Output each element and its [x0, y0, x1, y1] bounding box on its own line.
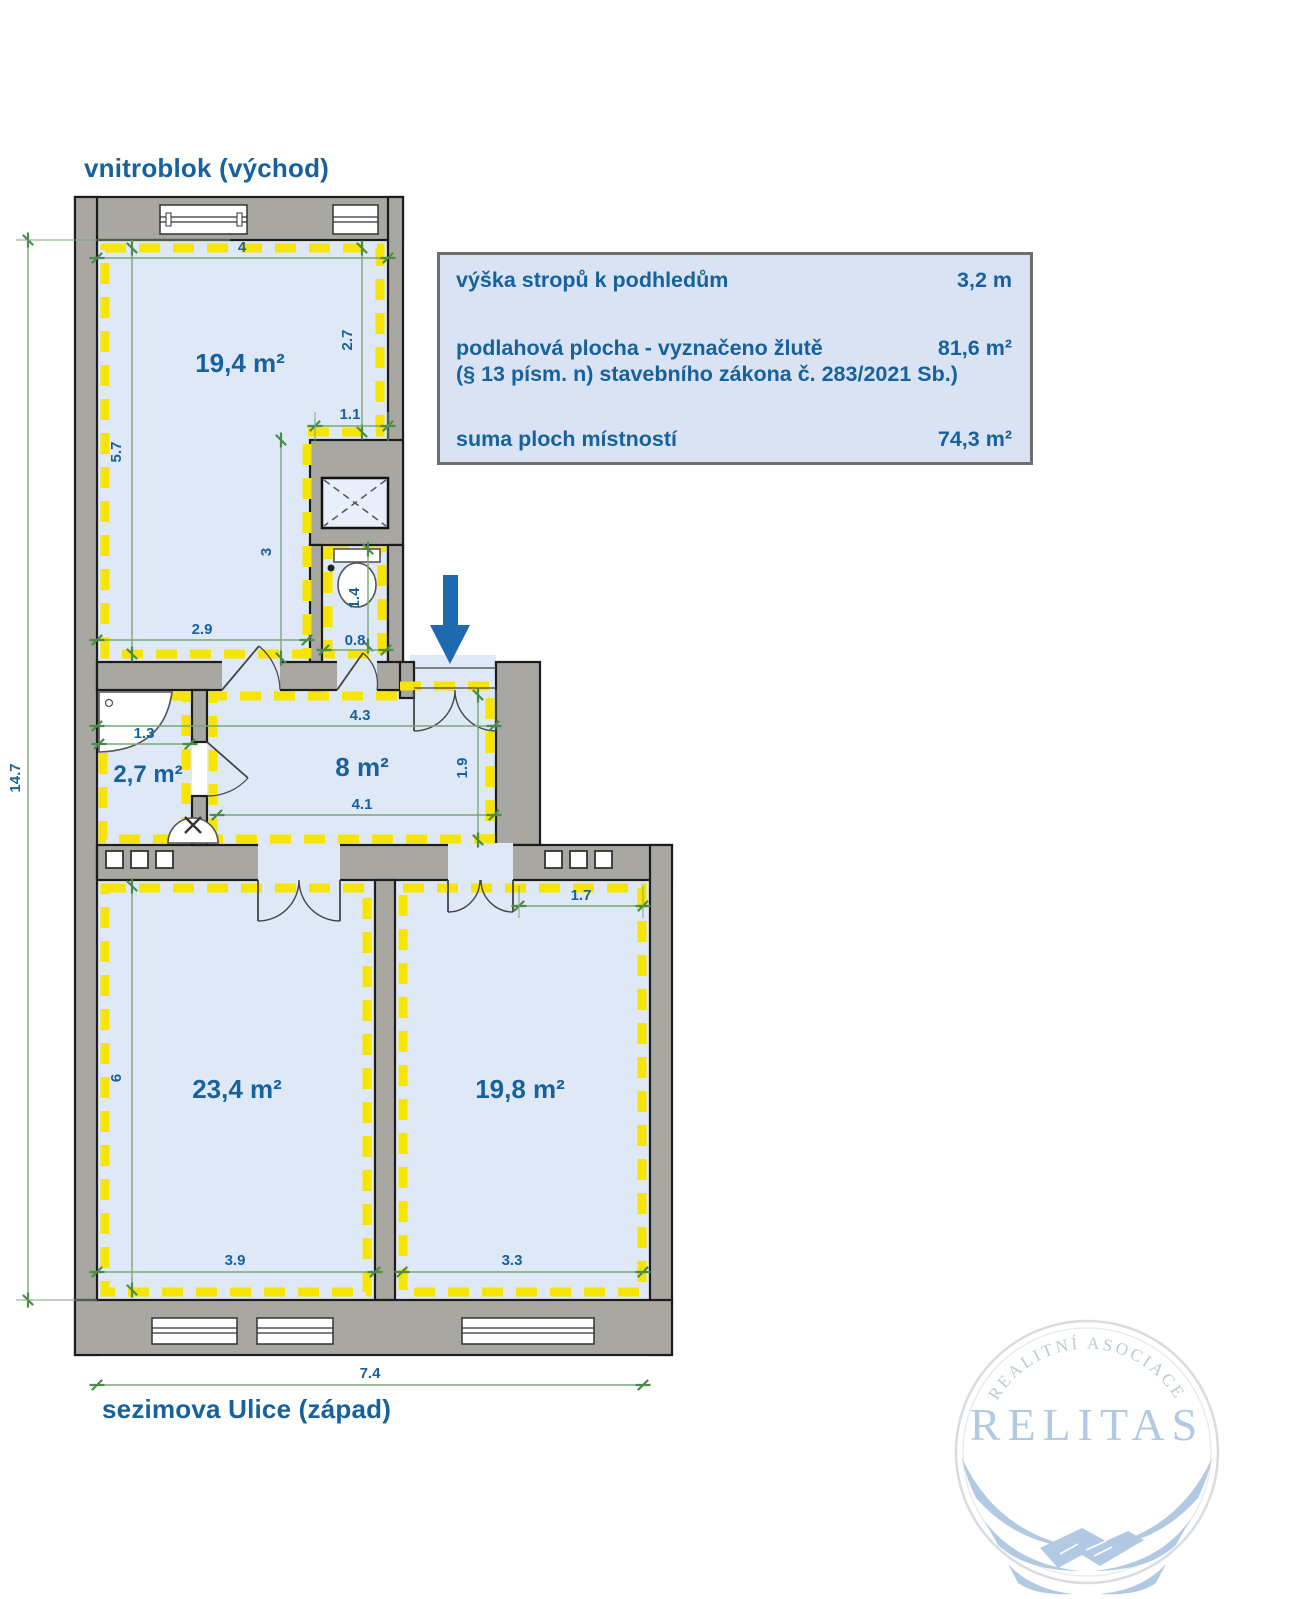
dim-wc-width: 0.8: [345, 632, 366, 649]
toilet-flush-dot: [328, 565, 335, 572]
dim-hall-bottom: 4.1: [352, 796, 373, 813]
dim-left-upper: 5.7: [108, 442, 125, 463]
room-bottom-right-label: 19,8 m²: [475, 1074, 565, 1104]
floorplan-page: { "labels": { "top_street": "vnitroblok …: [0, 0, 1305, 1599]
toilet-tank: [334, 549, 380, 562]
logo-wings-handshake-icon: [962, 1458, 1212, 1594]
room-bottom-left-label: 23,4 m²: [192, 1074, 282, 1104]
dim-right-upper: 2.7: [339, 330, 356, 351]
dim-bottom-right-width: 3.3: [502, 1252, 523, 1269]
dim-notch: 1.1: [340, 406, 361, 423]
hall-label: 8 m²: [335, 752, 389, 782]
dim-left-room-height: 6: [108, 1074, 125, 1082]
bathroom-label: 2,7 m²: [113, 761, 182, 788]
dim-bath-width: 1.3: [134, 725, 155, 742]
elevator-shaft: [322, 478, 388, 528]
dim-total-height: 14.7: [7, 763, 24, 792]
dim-right-room-top: 1.7: [571, 887, 592, 904]
dim-bottom-left-width: 3.9: [225, 1252, 246, 1269]
relitas-logo-watermark: REALITNÍ ASOCIACE RELITAS: [956, 1321, 1218, 1594]
room-top-label: 19,4 m²: [195, 348, 285, 378]
dim-wc-height: 1.4: [346, 587, 363, 609]
dim-total-width: 7.4: [360, 1365, 382, 1382]
dim-room-top-bottom: 2.9: [192, 621, 213, 638]
dim-entry-depth: 1.9: [454, 758, 471, 779]
dim-top-width: 4: [238, 239, 247, 256]
dim-hall-top: 4.3: [350, 707, 371, 724]
entrance-arrow-icon: [430, 575, 470, 664]
logo-wordmark: RELITAS: [970, 1399, 1204, 1450]
floorplan-drawing: 4 5.7 2.7 1.1 3 2.9 1.4 0.8 1.3 4.3 4.1 …: [0, 0, 1305, 1599]
shower-drain: [106, 700, 113, 707]
dim-inner-vert: 3: [258, 548, 275, 556]
